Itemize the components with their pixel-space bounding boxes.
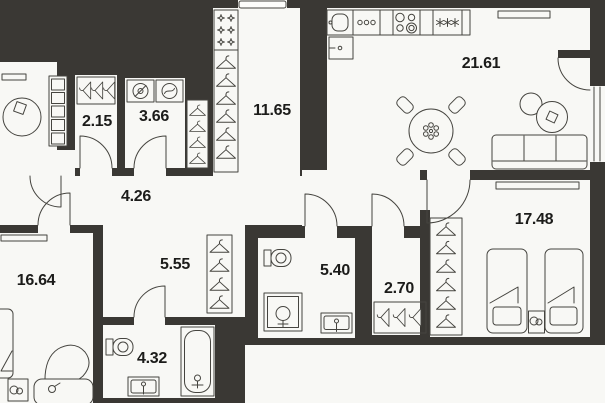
floor-plan: 21.61 11.65 4.26 2.15 3.66 5.55 5.40 2.7… (0, 0, 605, 403)
area-label-entry-hall: 11.65 (253, 102, 291, 120)
wall-bedroom2-closet (420, 210, 430, 337)
shelving-unit-icon (49, 76, 67, 146)
sofa-icon (492, 135, 587, 169)
room-corridor (0, 176, 304, 225)
shelf-icon (2, 74, 26, 80)
area-label-bedroom-1: 16.64 (17, 272, 56, 290)
area-label-corridor: 4.26 (121, 188, 151, 206)
area-label-wardrobe: 2.15 (82, 113, 112, 131)
washing-machine-icon (127, 80, 154, 102)
area-label-bathroom-2: 4.32 (137, 350, 167, 368)
toilet-icon (264, 250, 291, 267)
kitchen-counter (327, 10, 470, 35)
bed-icon (487, 249, 527, 333)
desk-icon (34, 379, 93, 403)
oven-icon (329, 37, 353, 59)
floor-plan-drawing (0, 0, 605, 403)
area-label-laundry: 3.66 (139, 108, 169, 126)
radiator-icon (498, 11, 550, 18)
nightstand-icon (529, 311, 545, 333)
area-label-inner-hall: 5.55 (160, 256, 190, 274)
area-label-bathroom-1: 5.40 (320, 262, 350, 280)
sink-icon (128, 377, 159, 396)
wall-stub-balcony (558, 50, 605, 58)
dining-table-icon (409, 109, 453, 153)
dryer-icon (156, 80, 183, 102)
bed-icon (0, 309, 13, 378)
area-label-bedroom-2: 17.48 (515, 211, 554, 229)
area-label-closet: 2.70 (384, 280, 414, 298)
sink-icon (321, 313, 352, 333)
outside-area (245, 345, 605, 403)
radiator-icon (1, 235, 47, 241)
area-label-kitchen-living: 21.61 (462, 55, 501, 73)
bed-icon (545, 249, 583, 333)
radiator-icon (496, 182, 579, 189)
fridge-icon (437, 19, 459, 27)
toilet-icon (106, 339, 133, 356)
bathtub-icon (181, 327, 214, 396)
entrance-door (239, 1, 286, 8)
nightstand-icon (8, 379, 28, 401)
armchair-icon (3, 98, 41, 136)
